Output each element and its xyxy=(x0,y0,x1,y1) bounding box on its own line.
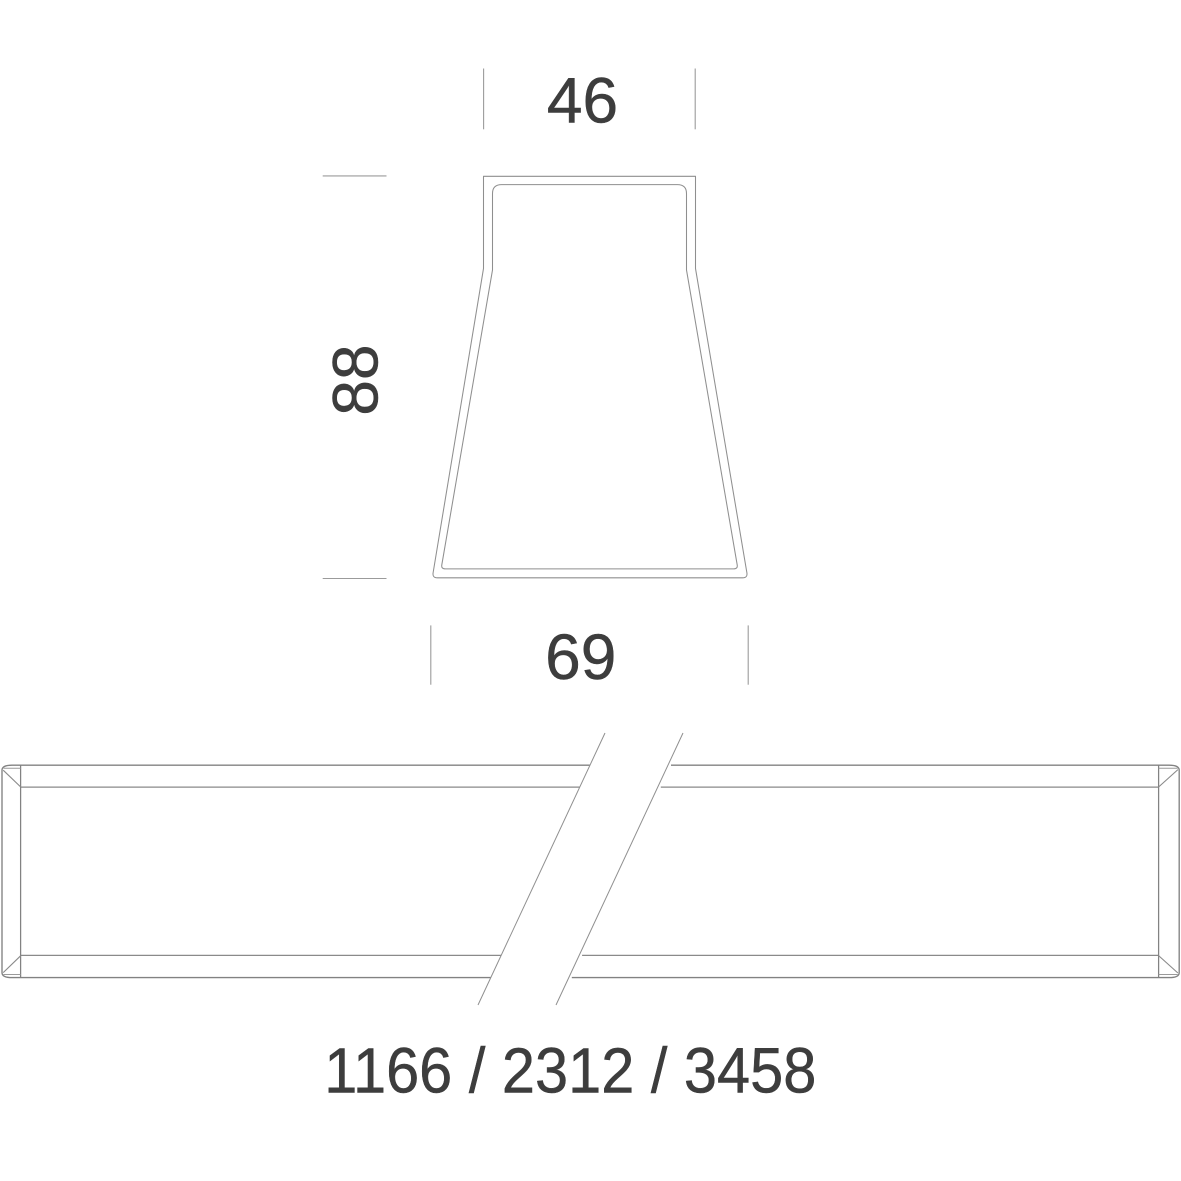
svg-text:69: 69 xyxy=(545,621,616,693)
svg-text:1166 / 2312 / 3458: 1166 / 2312 / 3458 xyxy=(324,1035,816,1107)
svg-text:46: 46 xyxy=(547,64,618,136)
svg-text:88: 88 xyxy=(320,344,392,415)
